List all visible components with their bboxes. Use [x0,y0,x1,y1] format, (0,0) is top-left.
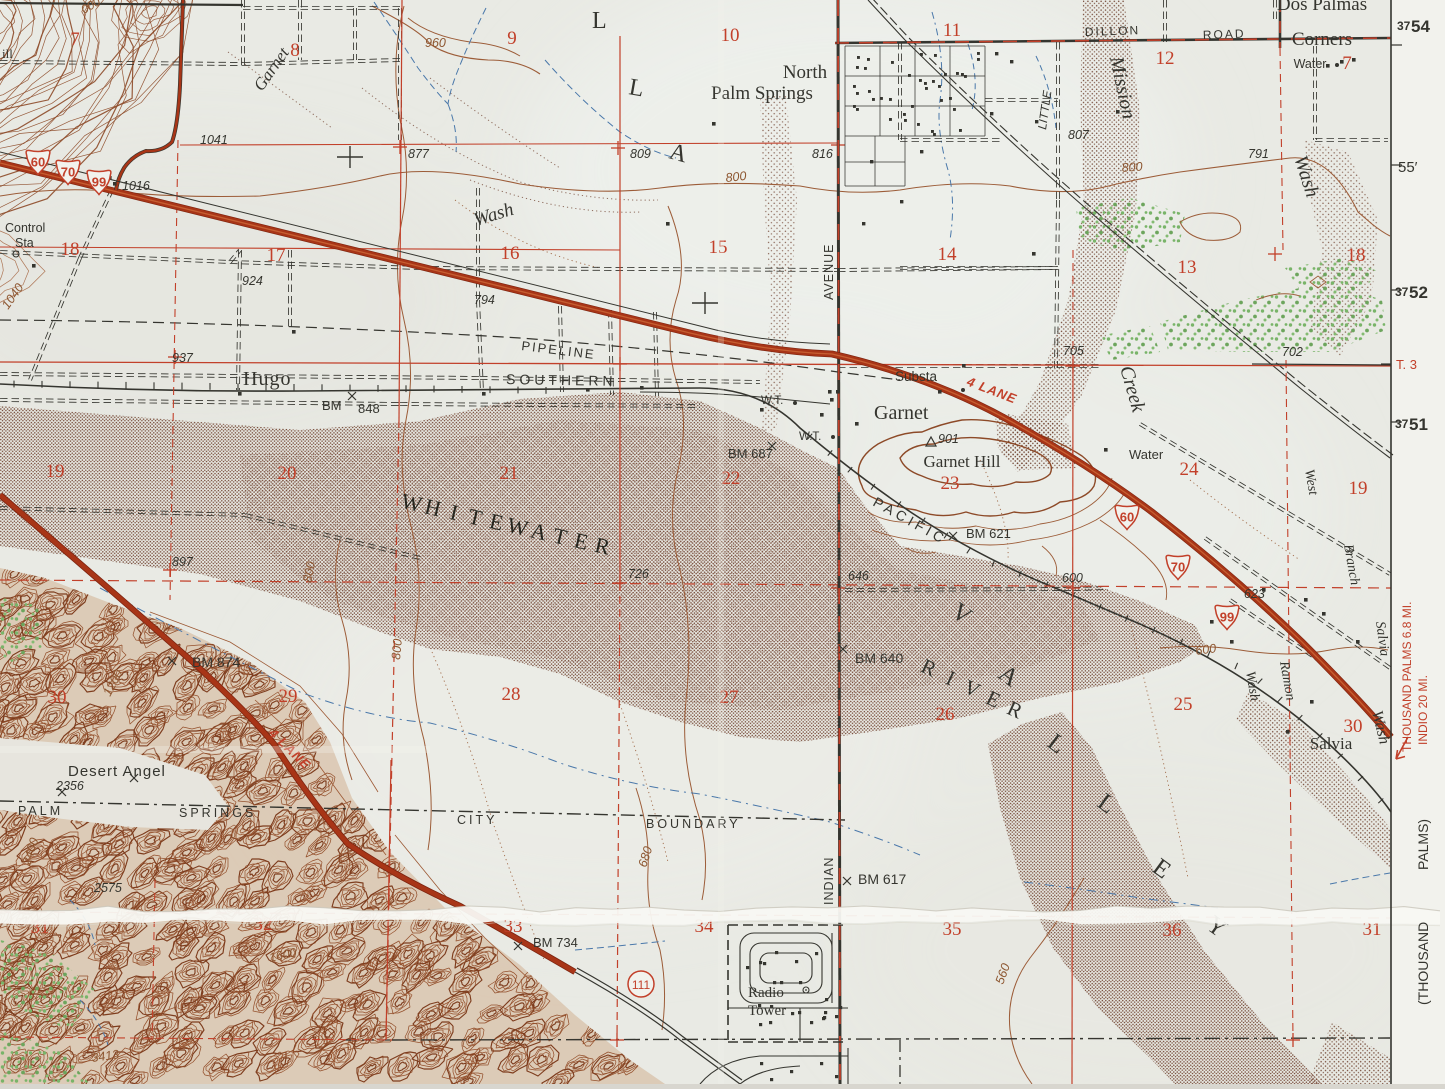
svg-text:ROAD: ROAD [1203,27,1246,42]
svg-text:BM 734: BM 734 [533,935,578,950]
svg-text:BM: BM [322,398,342,413]
svg-text:Hugo: Hugo [243,368,291,390]
svg-text:12: 12 [1156,48,1175,69]
svg-text:99: 99 [92,175,106,190]
svg-text:52: 52 [1409,283,1428,302]
svg-text:99: 99 [1220,610,1234,625]
svg-text:Garnet Hill: Garnet Hill [924,452,1001,471]
svg-text:19: 19 [1349,478,1368,499]
svg-text:INDIAN: INDIAN [822,857,836,905]
svg-text:22: 22 [722,468,741,489]
svg-text:PALMS): PALMS) [1415,819,1431,870]
svg-text:North: North [783,62,828,83]
svg-text:809: 809 [630,147,651,161]
svg-text:111: 111 [632,978,651,992]
svg-text:Radio: Radio [748,985,784,1001]
svg-text:702: 702 [1282,345,1303,359]
svg-text:L: L [592,8,607,34]
svg-text:600: 600 [1194,641,1217,658]
svg-text:Sta: Sta [15,236,34,250]
svg-text:18: 18 [61,239,80,260]
svg-text:937: 937 [172,351,194,365]
svg-text:60: 60 [1120,510,1134,525]
svg-text:Desert Angel: Desert Angel [68,763,166,780]
svg-text:SOUTHERN: SOUTHERN [506,371,617,389]
svg-text:BM 687: BM 687 [728,446,773,461]
svg-text:705: 705 [1063,344,1084,358]
svg-text:25: 25 [1174,694,1193,715]
svg-text:37: 37 [1395,417,1409,431]
svg-text:W.T.: W.T. [761,395,783,407]
svg-text:60: 60 [31,155,45,170]
svg-text:Water: Water [1129,447,1164,462]
svg-text:29: 29 [279,686,298,707]
svg-text:BM 621: BM 621 [966,526,1011,541]
svg-text:BM 640: BM 640 [855,650,903,666]
svg-text:CITY: CITY [457,813,497,827]
svg-text:21: 21 [500,463,519,484]
svg-text:24: 24 [1180,459,1200,480]
svg-text:8: 8 [290,40,300,61]
svg-text:901: 901 [938,432,959,446]
svg-text:800: 800 [725,169,747,185]
svg-text:816: 816 [812,147,833,161]
svg-text:877: 877 [408,147,430,161]
svg-text:924: 924 [242,274,263,288]
svg-text:T. 3: T. 3 [1396,357,1417,372]
svg-text:Salvia: Salvia [1310,734,1353,753]
svg-text:Dos Palmas: Dos Palmas [1277,0,1367,15]
svg-text:848: 848 [358,401,380,416]
svg-text:Palm Springs: Palm Springs [711,83,813,104]
svg-text:794: 794 [474,293,495,307]
svg-text:AVENUE: AVENUE [822,244,836,300]
svg-text:70: 70 [61,165,75,180]
svg-text:16: 16 [501,243,520,264]
svg-text:ill: ill [2,46,13,61]
svg-text:70: 70 [1171,560,1185,575]
svg-text:Tower: Tower [748,1003,786,1019]
svg-text:19: 19 [46,461,65,482]
svg-text:1016: 1016 [122,179,150,193]
svg-text:18: 18 [1347,245,1366,266]
svg-text:7: 7 [70,29,80,50]
svg-text:35: 35 [943,919,962,940]
svg-text:17: 17 [267,245,286,266]
svg-text:23: 23 [941,473,960,494]
svg-text:Corners: Corners [1292,29,1352,50]
svg-text:BM 874: BM 874 [192,654,240,670]
svg-text:28: 28 [502,684,521,705]
svg-text:600: 600 [1062,571,1083,585]
svg-text:W.T.: W.T. [799,431,821,443]
svg-text:800: 800 [389,638,405,660]
svg-text:26: 26 [936,704,955,725]
svg-text:37: 37 [1395,285,1409,299]
svg-text:960: 960 [425,36,446,50]
svg-text:THOUSAND PALMS 6.8 MI.: THOUSAND PALMS 6.8 MI. [1400,602,1414,752]
svg-text:897: 897 [172,555,194,569]
svg-text:20: 20 [278,463,297,484]
svg-text:2575: 2575 [93,881,122,895]
svg-text:13: 13 [1178,257,1197,278]
svg-text:51: 51 [1409,415,1428,434]
svg-text:BM 617: BM 617 [858,871,906,887]
svg-text:14: 14 [938,244,958,265]
svg-text:PALM: PALM [18,804,63,818]
svg-text:9: 9 [507,28,517,49]
svg-text:11: 11 [943,20,961,41]
svg-text:Garnet: Garnet [874,402,929,424]
svg-text:SPRINGS: SPRINGS [179,806,256,820]
svg-text:DILLON: DILLON [1085,23,1141,39]
svg-text:INDIO 20 MI.: INDIO 20 MI. [1416,675,1430,745]
svg-text:791: 791 [1248,147,1269,161]
svg-text:Substa: Substa [895,369,938,384]
svg-text:55′: 55′ [1398,159,1418,176]
svg-text:37: 37 [1397,19,1411,33]
svg-text:1041: 1041 [200,133,228,147]
svg-text:54: 54 [1411,17,1430,36]
svg-text:Water: Water [1294,57,1327,71]
svg-text:807: 807 [1068,128,1090,142]
svg-text:726: 726 [628,567,649,581]
svg-text:30: 30 [48,687,67,708]
svg-text:Control: Control [5,221,45,235]
svg-text:2356: 2356 [55,779,84,793]
svg-text:BOUNDARY: BOUNDARY [646,817,741,831]
svg-text:800: 800 [1121,160,1143,175]
svg-text:646: 646 [848,569,869,583]
svg-text:7: 7 [1342,53,1352,74]
svg-text:623: 623 [1244,587,1265,601]
svg-text:(THOUSAND: (THOUSAND [1415,922,1431,1005]
